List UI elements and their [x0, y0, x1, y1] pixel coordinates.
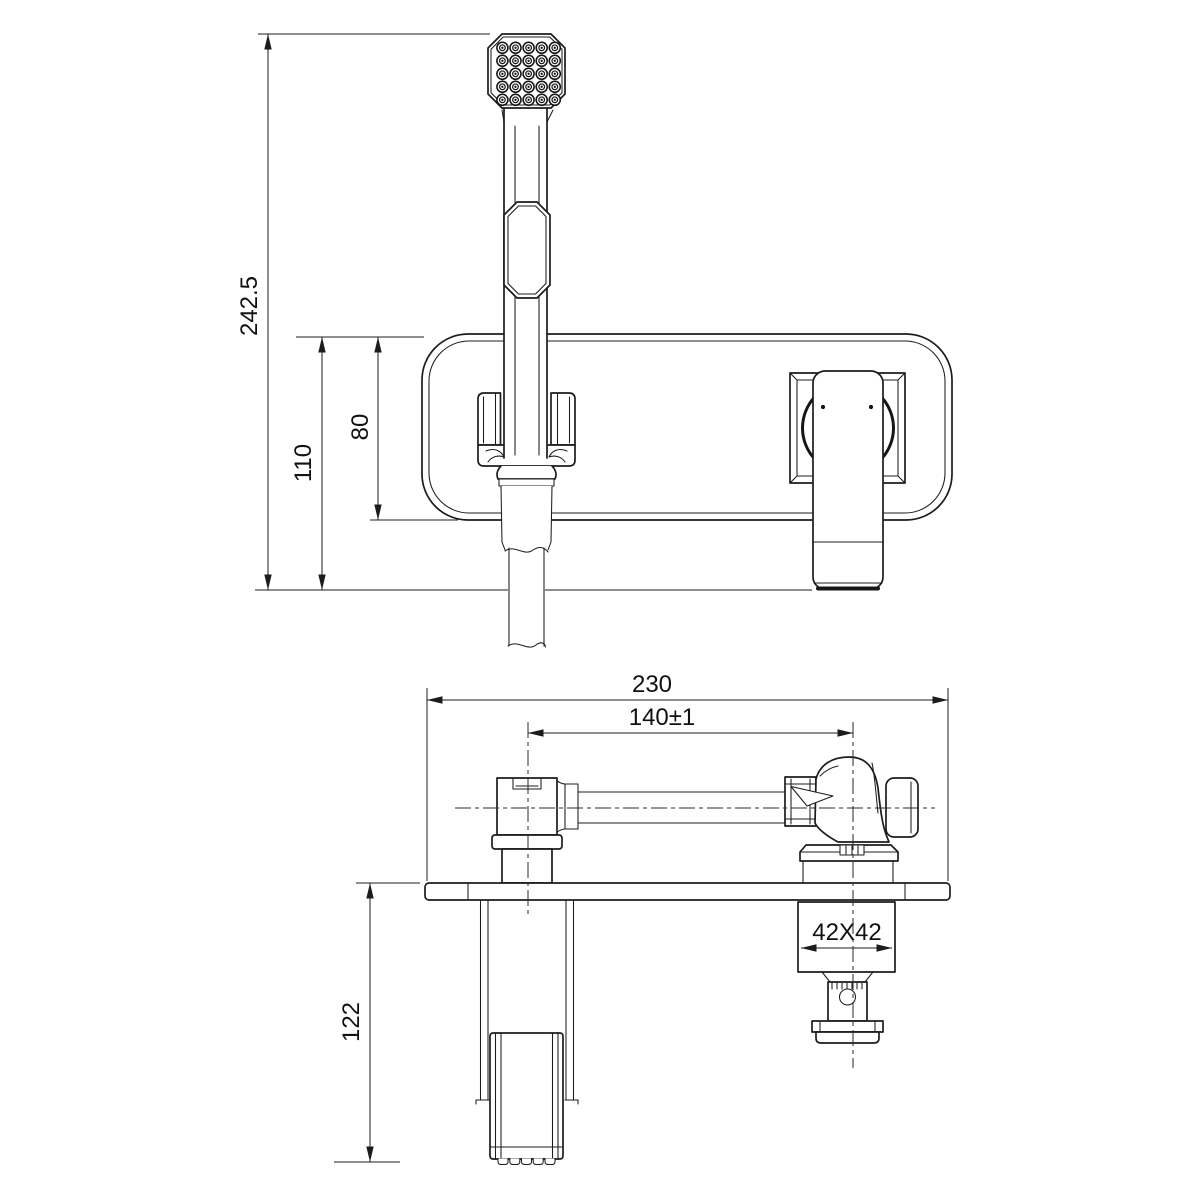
valve-top: [785, 757, 918, 883]
handshower-hanging: [476, 900, 578, 1165]
dimension-plate-to-wall: 110: [290, 337, 322, 590]
holder-top: [492, 778, 578, 883]
dimension-handshower-drop: 122: [338, 883, 370, 1162]
front-view: 242.5 110 80: [236, 34, 952, 647]
lever-handle: [813, 371, 883, 589]
faucet-dimension-drawing: 242.5 110 80: [0, 0, 1200, 1200]
handshower-head: [488, 34, 565, 108]
dim-label-plate-to-wall: 110: [290, 444, 317, 482]
dim-label-handshower-drop: 122: [338, 1002, 365, 1042]
nozzle-grid: [496, 42, 561, 107]
stem-base-flange: [812, 1021, 883, 1032]
dimension-overall-width: 230: [427, 671, 948, 700]
technical-drawing-page: 242.5 110 80: [0, 0, 1200, 1200]
dim-label-center-distance: 140±1: [629, 704, 696, 731]
dim-label-overall-width: 230: [632, 671, 672, 698]
dimension-plate-height: 80: [347, 337, 378, 520]
handshower-button-panel: [504, 202, 550, 298]
dim-label-overall-height: 242.5: [236, 276, 263, 336]
nozzle-bumps: [498, 1159, 555, 1165]
dimension-center-distance: 140±1: [528, 704, 853, 733]
shower-hose: [497, 466, 556, 647]
dim-label-rough-in-box: 42X42: [812, 919, 881, 946]
wall-plate-top: [425, 883, 950, 900]
dimension-rough-in-box: 42X42: [801, 919, 892, 948]
dimension-overall-height: 242.5: [236, 34, 268, 590]
valve-dome: [815, 757, 889, 842]
top-view: 230 140±1 42X42 122: [334, 671, 950, 1165]
dim-label-plate-height: 80: [347, 414, 374, 441]
